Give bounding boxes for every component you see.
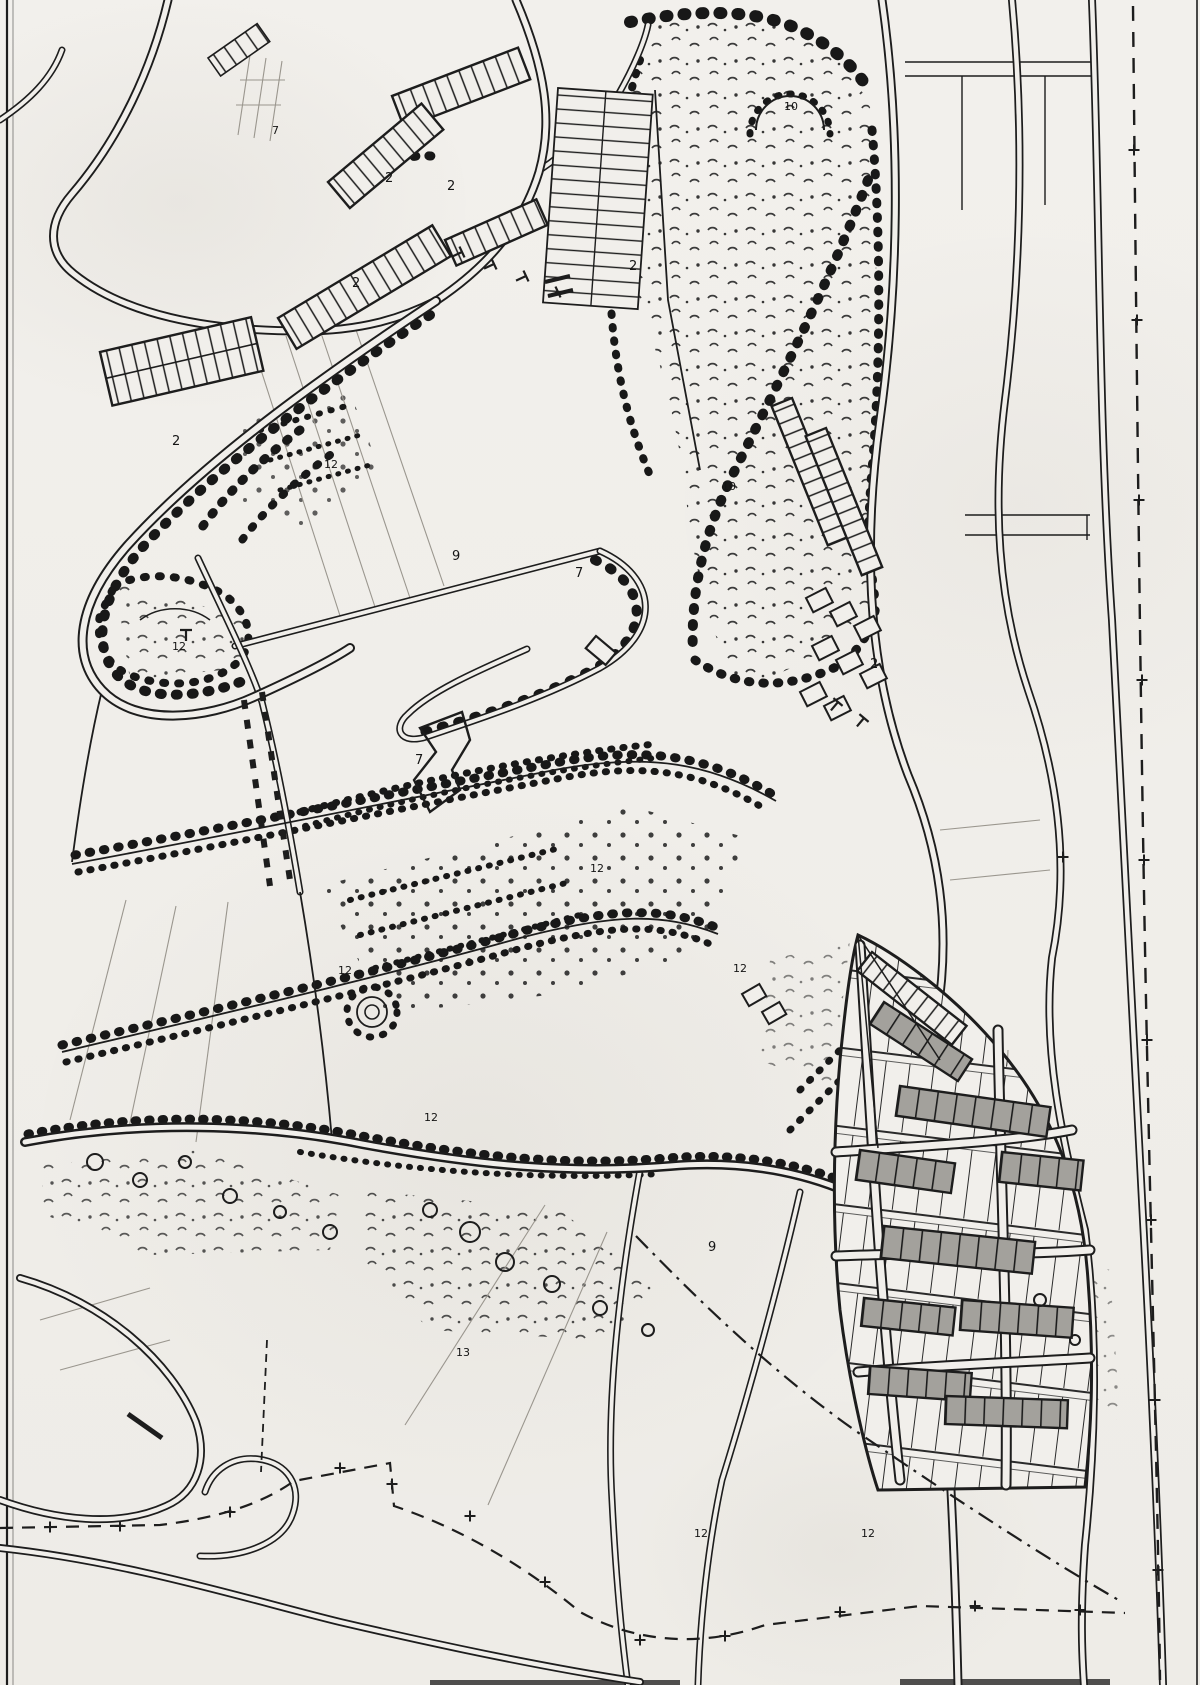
- parcel-number-label: 7: [415, 753, 423, 768]
- parcel-number-label: 12: [733, 962, 747, 975]
- field-strip-grid: [543, 88, 653, 309]
- parking-court: [100, 317, 263, 405]
- parcel-number-label: 12: [694, 1527, 708, 1540]
- parcel-number-label: 2: [172, 434, 180, 449]
- parcel-number-label: 10: [784, 100, 798, 113]
- parcel-number-label: 7: [575, 566, 583, 581]
- parcel-number-label: 9: [708, 1240, 716, 1255]
- parcel-number-label: 12: [338, 964, 352, 977]
- parcel-number-label: 2: [447, 179, 455, 194]
- parcel-number-label: 7: [272, 124, 279, 137]
- forest-polygon-north-east: [613, 16, 876, 688]
- site-plan-drawing: 2 2 2 2 7 2 12 12 9 7 10 10 7 12 12 12 2…: [0, 0, 1200, 1685]
- parcel-number-label: 12: [590, 862, 604, 875]
- parcel-number-label: 12: [861, 1527, 875, 1540]
- parcel-number-label: 12: [172, 640, 186, 653]
- parcel-number-label: 2: [385, 171, 393, 186]
- parcel-number-label: 12: [324, 458, 338, 471]
- parcel-number-label: 10: [722, 480, 736, 493]
- scanned-map-page: 2 2 2 2 7 2 12 12 9 7 10 10 7 12 12 12 2…: [0, 0, 1200, 1685]
- parcel-number-label: 12: [424, 1111, 438, 1124]
- parcel-number-label: 9: [452, 549, 460, 564]
- parcel-number-label: 13: [456, 1346, 470, 1359]
- parcel-number-label: 2: [870, 657, 878, 672]
- parcel-number-label: 2: [352, 276, 360, 291]
- parcel-number-label: 2: [629, 259, 637, 274]
- parcel-number-label: 9: [656, 1153, 664, 1168]
